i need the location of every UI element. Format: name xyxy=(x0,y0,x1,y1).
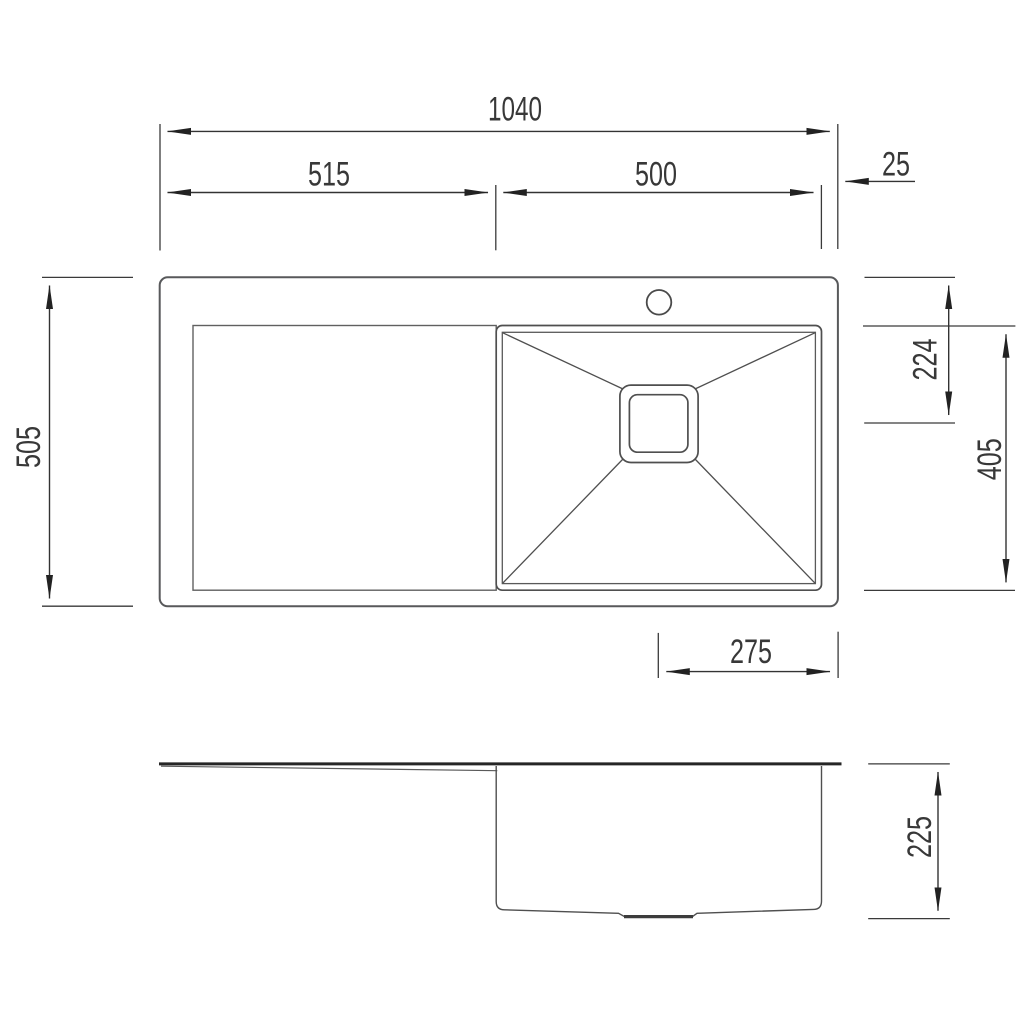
svg-text:25: 25 xyxy=(882,146,910,184)
svg-text:505: 505 xyxy=(10,426,48,468)
svg-text:275: 275 xyxy=(730,633,772,671)
svg-text:500: 500 xyxy=(635,156,677,194)
svg-text:405: 405 xyxy=(971,438,1009,480)
svg-text:224: 224 xyxy=(907,339,945,381)
svg-text:515: 515 xyxy=(308,156,350,194)
svg-text:225: 225 xyxy=(901,816,939,858)
svg-text:1040: 1040 xyxy=(488,90,542,128)
